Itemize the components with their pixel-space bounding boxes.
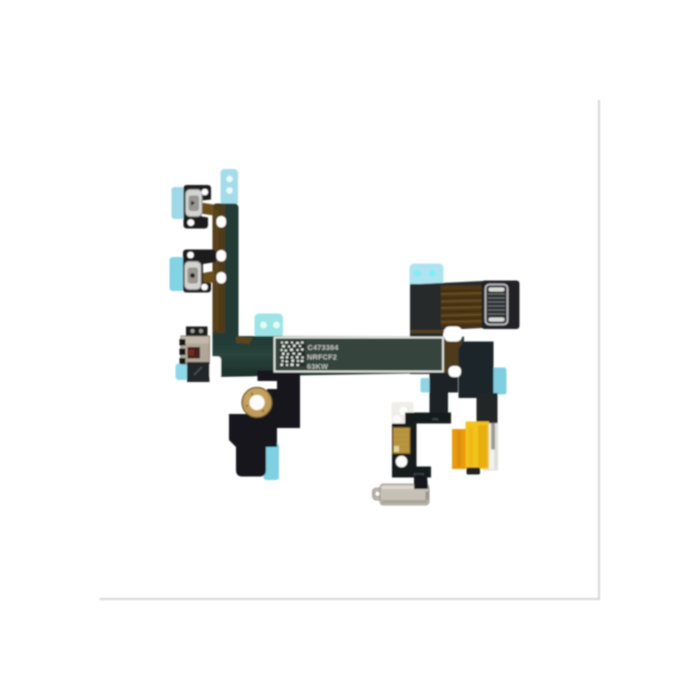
svg-text:NRFCF2: NRFCF2	[307, 353, 337, 362]
svg-text:63KW: 63KW	[307, 362, 328, 371]
svg-text:HM: HM	[432, 417, 438, 422]
svg-text:C473384: C473384	[308, 343, 340, 352]
